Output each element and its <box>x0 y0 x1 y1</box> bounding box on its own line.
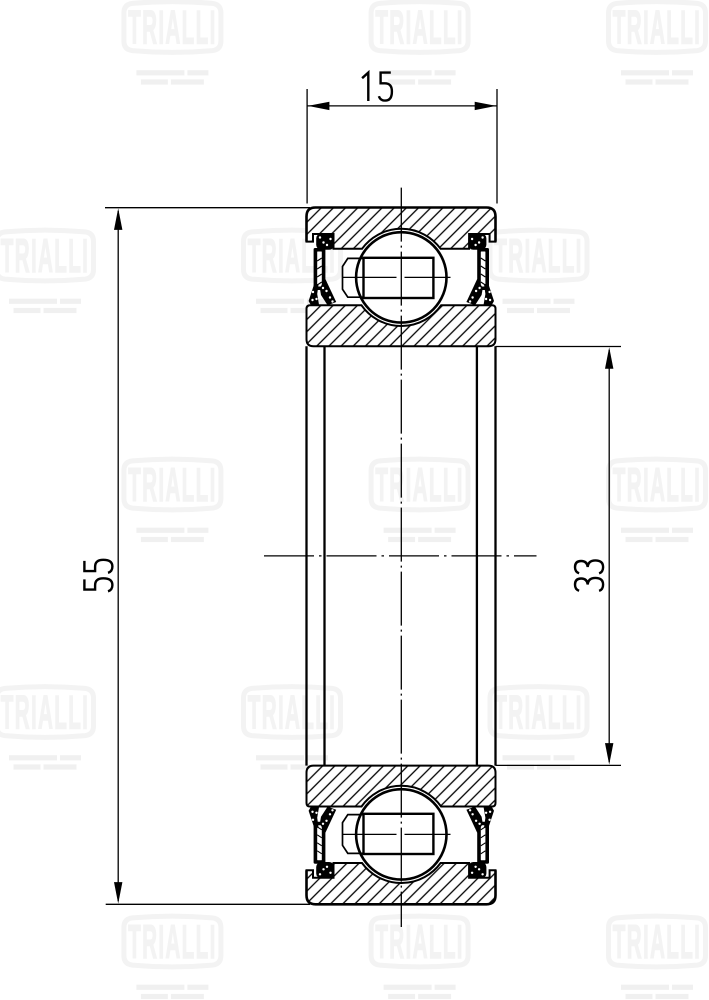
svg-text:TRIALLI: TRIALLI <box>1 229 89 282</box>
svg-text:TRIALLI: TRIALLI <box>494 229 582 282</box>
svg-text:TRIALLI: TRIALLI <box>128 1 216 54</box>
svg-text:TRIALLI: TRIALLI <box>1 686 89 739</box>
svg-text:TRIALLI: TRIALLI <box>375 458 463 511</box>
svg-text:TRIALLI: TRIALLI <box>613 915 701 968</box>
svg-text:TRIALLI: TRIALLI <box>128 458 216 511</box>
svg-text:TRIALLI: TRIALLI <box>248 686 336 739</box>
svg-text:TRIALLI: TRIALLI <box>613 458 701 511</box>
svg-text:TRIALLI: TRIALLI <box>375 915 463 968</box>
svg-text:TRIALLI: TRIALLI <box>128 915 216 968</box>
svg-text:TRIALLI: TRIALLI <box>375 1 463 54</box>
svg-text:TRIALLI: TRIALLI <box>494 686 582 739</box>
svg-text:TRIALLI: TRIALLI <box>613 1 701 54</box>
